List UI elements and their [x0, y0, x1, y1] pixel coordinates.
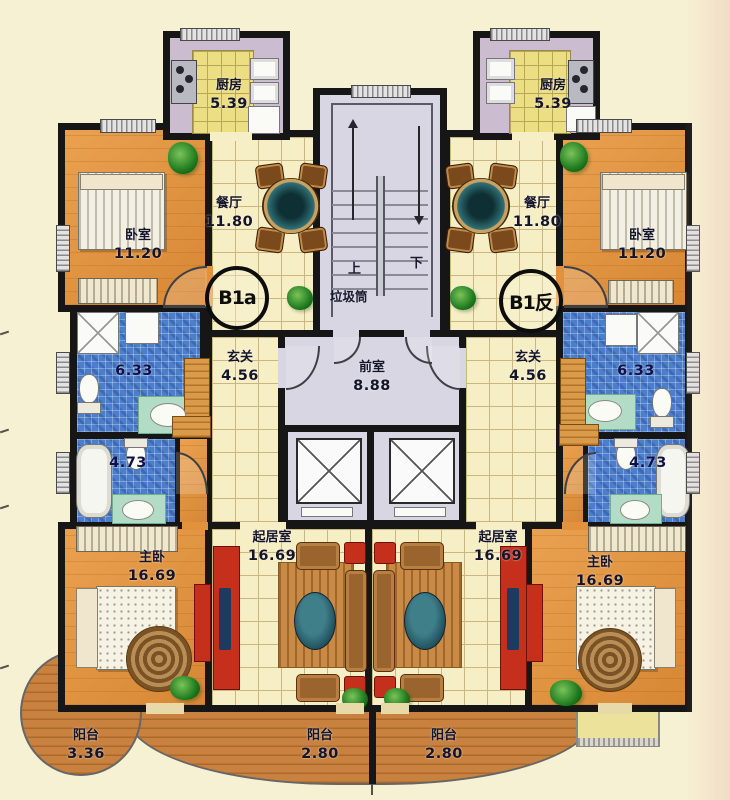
label-dining-right: 餐厅 11.80	[506, 196, 568, 232]
plant-hall-left	[287, 286, 313, 310]
door-gap-master-left	[182, 522, 208, 530]
armchair	[296, 674, 340, 702]
door-gap-master-right	[562, 522, 588, 530]
armchair	[400, 542, 444, 570]
bay-window-right-sill	[578, 738, 658, 746]
toilet-tank	[614, 438, 638, 448]
label-bedroom-right: 卧室 11.20	[610, 228, 674, 264]
room-name: 厨房	[522, 78, 584, 95]
plant-master-right	[550, 680, 582, 706]
balcony-divider-wall	[369, 710, 376, 784]
plant-master-left	[170, 676, 200, 700]
burner	[176, 66, 184, 74]
balcony-door-living-left	[336, 703, 364, 714]
label-balcony-front-right: 阳台 2.80	[416, 728, 472, 764]
window-bedroom-right-top	[576, 119, 632, 133]
washer-right	[605, 314, 637, 346]
elevator-door-left	[301, 507, 353, 517]
room-area: 4.73	[620, 454, 676, 473]
shelf-right	[559, 424, 599, 446]
label-kitchen-left: 厨房 5.39	[198, 78, 260, 114]
room-name: 餐厅	[198, 196, 260, 213]
window-bath-left-1	[56, 352, 70, 394]
dim-tick	[0, 505, 9, 510]
label-foyer-left: 玄关 4.56	[210, 350, 270, 386]
closet-bedroom-left	[78, 278, 158, 304]
room-area: 16.69	[240, 547, 304, 566]
stair-up-arrowhead	[348, 119, 358, 128]
elevator-door-right	[394, 507, 446, 517]
room-name: 卧室	[610, 228, 674, 245]
room-area: 16.69	[466, 547, 530, 566]
plant-hall-right	[450, 286, 476, 310]
sink-right-2	[620, 500, 650, 520]
side-table	[374, 542, 396, 564]
stair-up-arrow	[352, 128, 354, 220]
room-area: 11.80	[506, 213, 568, 232]
stove-left	[171, 60, 197, 104]
label-bedroom-left: 卧室 11.20	[106, 228, 170, 264]
label-master-right: 主卧 16.69	[568, 555, 632, 591]
shelf-left	[172, 416, 211, 438]
label-kitchen-right: 厨房 5.39	[522, 78, 584, 114]
door-gap-kitchen-right	[512, 132, 554, 141]
room-name: 阳台	[416, 728, 472, 745]
label-dining-left: 餐厅 11.80	[198, 196, 260, 232]
tv-cabinet-master-left	[194, 584, 211, 662]
label-bath-main-right: 6.33	[608, 362, 664, 381]
room-area: 11.80	[198, 213, 260, 232]
room-area: 11.20	[106, 245, 170, 264]
dim-tick	[0, 429, 9, 434]
label-bath-second-right: 4.73	[620, 454, 676, 473]
closet-bedroom-right	[608, 280, 674, 304]
room-area: 6.33	[608, 362, 664, 381]
pillow	[76, 588, 98, 668]
tv-cabinet-master-right	[526, 584, 543, 662]
pillow	[80, 174, 163, 190]
label-balcony-side-left: 阳台 3.36	[56, 728, 116, 764]
balcony-door-living-right	[381, 703, 409, 714]
plant-bedroom-right	[560, 142, 588, 172]
room-name: 卧室	[106, 228, 170, 245]
room-area: 16.69	[568, 572, 632, 591]
round-rug-right	[578, 628, 642, 692]
toilet-tank	[650, 416, 674, 428]
room-name: 玄关	[498, 350, 558, 367]
room-name: 起居室	[240, 530, 304, 547]
counter-right-1	[486, 58, 515, 80]
door-gap-living-right	[476, 522, 522, 530]
window-bath-right-2	[686, 452, 700, 494]
room-area: 5.39	[198, 95, 260, 114]
window-bedroom-left-top	[100, 119, 156, 133]
room-area: 2.80	[292, 745, 348, 764]
room-area: 11.20	[610, 245, 674, 264]
room-area: 2.80	[416, 745, 472, 764]
coffee-table-left	[294, 592, 336, 650]
sofa-right	[373, 570, 395, 672]
label-lobby: 前室 8.88	[340, 360, 404, 396]
window-stair-top	[351, 85, 411, 98]
elevator-car-right	[389, 438, 455, 504]
room-name: 阳台	[292, 728, 348, 745]
room-name: 起居室	[466, 530, 530, 547]
sink-left-2	[122, 500, 154, 520]
room-area: 16.69	[120, 567, 184, 586]
balcony-door-master-left	[146, 703, 184, 714]
counter-left-1	[250, 58, 279, 80]
pillow	[654, 588, 676, 668]
pillow	[602, 174, 685, 190]
balcony-door-master-right	[598, 703, 632, 714]
coffee-table-right	[404, 592, 446, 650]
tv-screen	[219, 588, 231, 650]
closet-master-left	[76, 526, 178, 552]
window-bath-left-2	[56, 452, 70, 494]
window-bedroom-right-side	[686, 225, 700, 272]
dining-table-right	[452, 178, 510, 234]
front-balcony	[126, 705, 596, 785]
window-bedroom-left-side	[56, 225, 70, 272]
window-kitchen-right-top	[490, 28, 550, 41]
unit-badge-left: B1a	[205, 266, 269, 330]
room-name: 主卧	[568, 555, 632, 572]
shower-left	[77, 312, 119, 354]
sink-right-1	[588, 400, 622, 422]
label-stair-down: 下	[410, 252, 423, 271]
toilet-tank	[77, 402, 101, 414]
dim-tick	[0, 665, 9, 670]
room-name: 阳台	[56, 728, 116, 745]
label-bath-second-left: 4.73	[100, 454, 156, 473]
window-kitchen-left-top	[180, 28, 240, 41]
toilet-right-1	[652, 388, 672, 418]
side-table	[344, 542, 366, 564]
door-gap-lobby-left	[278, 348, 286, 388]
toilet-tank	[124, 438, 148, 448]
room-area: 4.56	[498, 367, 558, 386]
elevator-car-left	[296, 438, 362, 504]
label-living-left: 起居室 16.69	[240, 530, 304, 566]
room-name: 餐厅	[506, 196, 568, 213]
unit-badge-right: B1反	[499, 269, 563, 333]
window-bath-right-1	[686, 352, 700, 394]
stair-rail	[376, 176, 385, 296]
label-master-left: 主卧 16.69	[120, 550, 184, 586]
washer-left	[125, 312, 159, 344]
room-name: 主卧	[120, 550, 184, 567]
room-area: 5.39	[522, 95, 584, 114]
door-gap-kitchen-left	[210, 132, 252, 141]
room-area: 4.56	[210, 367, 270, 386]
plant-bedroom-left	[168, 142, 198, 174]
label-foyer-right: 玄关 4.56	[498, 350, 558, 386]
room-area: 4.73	[100, 454, 156, 473]
shower-right	[637, 312, 679, 354]
room-area: 8.88	[340, 377, 404, 396]
toilet-left-1	[79, 374, 99, 404]
dining-table-left	[262, 178, 320, 234]
room-name: 厨房	[198, 78, 260, 95]
burner	[580, 66, 588, 74]
room-name: 前室	[340, 360, 404, 377]
closet-master-right	[588, 526, 686, 552]
label-bath-main-left: 6.33	[106, 362, 162, 381]
label-stair-up: 上	[348, 258, 361, 277]
dim-tick	[0, 331, 9, 336]
door-gap-living-left	[240, 522, 286, 530]
sofa-left	[345, 570, 367, 672]
burner	[176, 85, 184, 93]
counter-right-2	[486, 82, 515, 104]
stair-down-arrow	[418, 126, 420, 218]
tv-screen	[507, 588, 519, 650]
label-trash-chute: 垃圾筒	[330, 286, 368, 305]
label-living-right: 起居室 16.69	[466, 530, 530, 566]
label-balcony-front-left: 阳台 2.80	[292, 728, 348, 764]
room-area: 3.36	[56, 745, 116, 764]
room-name: 玄关	[210, 350, 270, 367]
burner	[185, 75, 193, 83]
floor-plan: 厨房 5.39 厨房 5.39 餐厅 11.80 餐厅 11.80 卧室 11.…	[0, 0, 730, 800]
room-area: 6.33	[106, 362, 162, 381]
stair-down-arrowhead	[414, 216, 424, 225]
